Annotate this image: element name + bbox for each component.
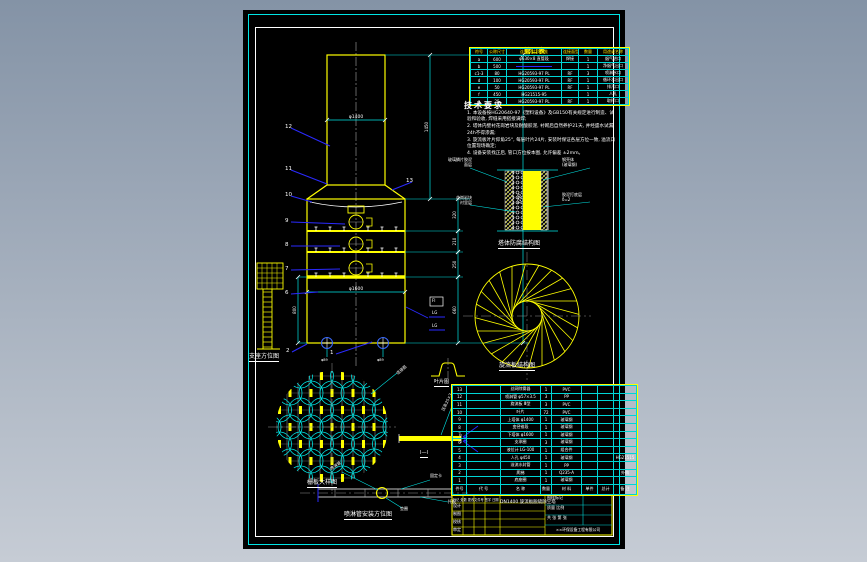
base-caption: 支座方位图 xyxy=(249,353,279,362)
base-nozzle-dim1: φ89 xyxy=(321,358,328,362)
tag-FI: FI xyxy=(432,299,435,304)
bom-row: 12喷淋管 φ57×3.53PP xyxy=(453,393,637,401)
lining-label-face: 玻璃鳞片胶泥面层 xyxy=(446,158,472,167)
pipe-label-ur: 固定卡 xyxy=(430,474,442,479)
nozzle-table: 符号公称尺寸连接尺寸、标准连接面型式数量用途或名称a600φ630×8 直管段焊… xyxy=(470,48,610,105)
notes-title: 技术要求 xyxy=(464,100,504,111)
bom-row: 2爬梯1Q235-A外购 xyxy=(453,469,637,477)
tag-LG1: LG xyxy=(432,311,437,316)
titleblock-role: 审定 xyxy=(453,528,461,536)
bom-row: 13丝网除雾器1PVC xyxy=(453,386,637,394)
bom-row: 3溢流水封管1PP xyxy=(453,461,637,469)
note-item: 4. 设备安装找正后, 管口方位按本图, 允许偏差 ±2mm。 xyxy=(467,151,617,157)
vane-caption: 叶片图 xyxy=(434,379,449,387)
bom-table: 13丝网除雾器1PVC12喷淋管 φ57×3.53PP11旋流板 Ⅲ型3PVC1… xyxy=(452,385,612,495)
nozzle-row: d100HG20593-97 PLRF1循环水出口 xyxy=(471,77,629,84)
bom-row: 1底座圈1玻璃钢 xyxy=(453,477,637,485)
bom-row: 11旋流板 Ⅲ型3PVC xyxy=(453,401,637,409)
bar-caption: Ⅰ—Ⅰ xyxy=(420,450,428,458)
note-item: 3. 旋流板叶片仰角25°, 每层叶片24片, 安装时保证各层方位一致, 溢流口… xyxy=(467,138,617,150)
bom-row: 7下塔体 φ16001玻璃钢 xyxy=(453,431,637,439)
grid-caption: 栅板大样图 xyxy=(307,479,337,488)
nozzle-row: c1-380HG20593-97 PLRF3喷淋水口 xyxy=(471,70,629,77)
bom-row: 6支承圈3玻璃钢 xyxy=(453,439,637,447)
titleblock-left-rows: 设计制图校核审定 xyxy=(453,504,461,536)
bom-row: 4人孔 φ4501玻璃钢HG21515 xyxy=(453,454,637,462)
cad-viewer-window: 32021025066014507250800φ1400φ1600 121110… xyxy=(0,0,867,562)
titleblock-toprow: 标记 处数 更改文件号 签字 日期 xyxy=(453,497,543,502)
titleblock-company: ××环保设备工程有限公司 xyxy=(546,527,610,533)
pipe-caption: 喷淋管安装方位图 xyxy=(344,511,392,520)
tag-LG2: LG xyxy=(432,324,437,329)
titleblock-right-rows: 图样标记质量 比例共 张 第 张 xyxy=(547,496,567,526)
lining-label-shell: 钢壳体(玻璃钢) xyxy=(562,158,592,167)
lining-caption: 塔体防腐结构图 xyxy=(498,240,540,249)
base-nozzle-dim2: φ89 xyxy=(377,358,384,362)
note-item: 2. 塔体内壁衬花岗岩块及耐酸胶泥, 衬砌后自然养护21天, 并经盛水试漏24h… xyxy=(467,124,617,136)
nozzle-row: e50HG20593-97 PLRF1排污口 xyxy=(471,84,629,91)
nozzle-row: f450HG21515-951人孔 xyxy=(471,91,629,98)
bom-header-row: 件号代 号名 称数量材 料单件总计备 注 xyxy=(453,484,637,494)
note-item: 1. 本设备按HG20640-97《塑料设备》及GB150有关规定进行制造、试验… xyxy=(467,111,617,123)
swirl-caption: 旋流板结构图 xyxy=(499,362,535,371)
pipe-label-ll: 垫圈 xyxy=(400,507,408,512)
notes-list: 1. 本设备按HG20640-97《塑料设备》及GB150有关规定进行制造、试验… xyxy=(467,111,617,158)
nozzle-row: b5001净烟气出口 xyxy=(471,63,629,70)
lining-label-primer: 胶泥打底层δ=2 xyxy=(562,193,592,202)
bom-row: 9上塔体 φ14001玻璃钢 xyxy=(453,416,637,424)
bom-row: 10叶片72PVC xyxy=(453,408,637,416)
titleblock-info: 共 张 第 张 xyxy=(547,516,567,526)
bom-row: 5液位计 LG-1001组合件 xyxy=(453,446,637,454)
bom-row: 8变径锥段1玻璃钢 xyxy=(453,423,637,431)
nozzle-header-row: 符号公称尺寸连接尺寸、标准连接面型式数量用途或名称 xyxy=(471,49,629,56)
nozzle-row: a600φ630×8 直管段焊接1烟气进口 xyxy=(471,56,629,63)
lining-label-brick: 花岗岩块衬里层 xyxy=(446,196,472,205)
